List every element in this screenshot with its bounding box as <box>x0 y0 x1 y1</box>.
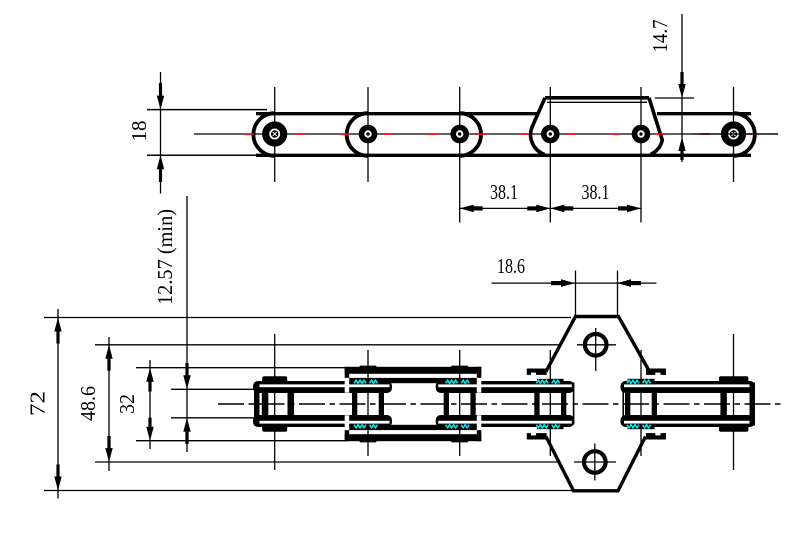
svg-text:14.7: 14.7 <box>648 20 672 53</box>
svg-text:38.1: 38.1 <box>490 180 518 204</box>
svg-text:18.6: 18.6 <box>497 254 525 278</box>
svg-text:12.57 (min): 12.57 (min) <box>153 209 177 305</box>
svg-text:72: 72 <box>26 391 50 416</box>
svg-text:38.1: 38.1 <box>582 180 610 204</box>
svg-text:48.6: 48.6 <box>76 386 100 421</box>
svg-text:32: 32 <box>115 394 139 414</box>
svg-text:18: 18 <box>127 121 151 142</box>
